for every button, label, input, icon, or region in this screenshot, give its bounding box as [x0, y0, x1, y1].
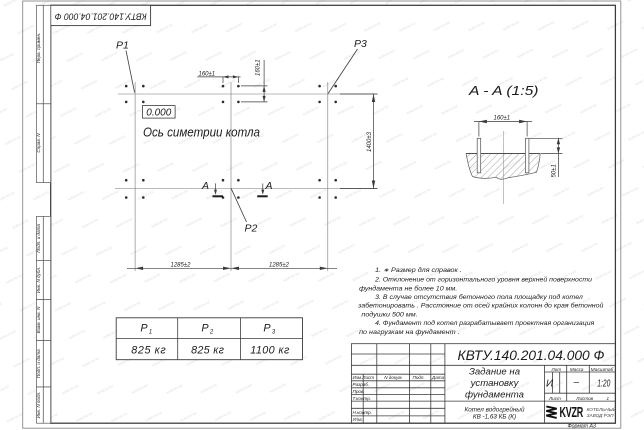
svg-text:Н.контр.: Н.контр.: [353, 410, 372, 415]
svg-text:Котел водогрейный: Котел водогрейный: [465, 406, 525, 414]
svg-text:Масса: Масса: [570, 367, 584, 372]
svg-text:50±1: 50±1: [552, 164, 558, 177]
svg-text:Дата: Дата: [431, 375, 445, 380]
svg-text:1:20: 1:20: [597, 379, 610, 390]
svg-text:Масштаб: Масштаб: [591, 367, 614, 372]
svg-text:Перв. примен.: Перв. примен.: [36, 33, 41, 64]
svg-text:КВ -1,63 КБ (К): КВ -1,63 КБ (К): [473, 414, 516, 421]
svg-text:A: A: [265, 180, 273, 192]
svg-text:160±1: 160±1: [256, 59, 262, 76]
svg-text:2: 2: [209, 330, 214, 336]
svg-text:КОТЕЛЬНЫЙ: КОТЕЛЬНЫЙ: [587, 405, 617, 412]
svg-text:P3: P3: [354, 38, 367, 50]
svg-text:забетонировать . Расстояние о: забетонировать . Расстояние от осей край…: [357, 302, 604, 310]
svg-text:Инв. N дубл.: Инв. N дубл.: [36, 267, 41, 294]
svg-text:Подп.: Подп.: [413, 375, 425, 380]
svg-text:1285±2: 1285±2: [269, 263, 290, 269]
svg-text:1285±2: 1285±2: [171, 263, 192, 269]
svg-text:подушки 500 мм.: подушки 500 мм.: [361, 310, 417, 318]
svg-text:P: P: [263, 323, 271, 335]
svg-text:–: –: [573, 377, 580, 388]
svg-text:КВТУ.140.201.04.000 Ф: КВТУ.140.201.04.000 Ф: [458, 347, 605, 363]
svg-text:P: P: [140, 323, 148, 335]
svg-text:2. Отклонение от горизонтал: 2. Отклонение от горизонтального уровня …: [374, 276, 593, 284]
svg-text:P1: P1: [116, 40, 129, 52]
svg-text:Листов: Листов: [575, 396, 593, 401]
svg-text:160±1: 160±1: [494, 115, 511, 121]
svg-text:3. В случае отсутствия бет: 3. В случае отсутствия бетонного пола пл…: [375, 293, 583, 301]
svg-text:Задание на: Задание на: [469, 367, 520, 378]
svg-text:Утв.: Утв.: [353, 417, 363, 422]
svg-text:установку: установку: [470, 378, 520, 389]
svg-text:ЗАВОД РЭП: ЗАВОД РЭП: [587, 413, 614, 418]
svg-text:4. Фундамент под котел раз: 4. Фундамент под котел разрабатывает про…: [375, 319, 595, 327]
svg-text:Изм.Лист: Изм.Лист: [353, 375, 375, 380]
svg-text:1400±3: 1400±3: [367, 131, 373, 152]
svg-text:Справ. N: Справ. N: [36, 133, 41, 153]
svg-text:1. ∗ Размер для справок .: 1. ∗ Размер для справок .: [375, 266, 462, 274]
svg-text:1: 1: [149, 330, 152, 336]
svg-text:1: 1: [607, 396, 610, 401]
svg-text:Взам. инв. N: Взам. инв. N: [36, 306, 41, 333]
svg-text:0.000: 0.000: [146, 107, 171, 118]
svg-text:Разраб.: Разраб.: [353, 382, 370, 387]
svg-text:Инв. N подл.: Инв. N подл.: [36, 392, 41, 419]
svg-text:Лит: Лит: [551, 367, 562, 372]
svg-text:825 кг: 825 кг: [131, 344, 166, 356]
svg-text:И: И: [546, 379, 554, 390]
svg-text:P: P: [201, 323, 209, 335]
svg-text:825 кг: 825 кг: [191, 344, 225, 356]
svg-text:KVZR: KVZR: [560, 404, 584, 421]
svg-text:Подп. и дата: Подп. и дата: [36, 349, 41, 378]
svg-text:A: A: [201, 180, 209, 192]
svg-text:фундамента: фундамента: [465, 390, 524, 401]
svg-text:КВТУ.140.201.04.000 Ф: КВТУ.140.201.04.000 Ф: [55, 12, 147, 22]
svg-text:Т.контр.: Т.контр.: [353, 396, 372, 401]
svg-text:N докум.: N докум.: [384, 375, 403, 380]
svg-text:160±1: 160±1: [199, 71, 216, 77]
svg-text:Формат А3: Формат А3: [568, 423, 596, 429]
svg-text:Подп. и дата: Подп. и дата: [36, 224, 41, 253]
svg-text:Лист: Лист: [548, 396, 561, 401]
svg-text:Ось симетрии котла: Ось симетрии котла: [143, 125, 260, 140]
svg-text:A - A (1:5): A - A (1:5): [468, 83, 539, 98]
svg-text:Пров.: Пров.: [353, 389, 365, 394]
svg-text:1100 кг: 1100 кг: [250, 344, 290, 356]
svg-text:фундамента не более 10 мм.: фундамента не более 10 мм.: [359, 284, 457, 292]
svg-text:P2: P2: [245, 223, 258, 235]
svg-text:по нагрузкам на фундамент .: по нагрузкам на фундамент .: [359, 328, 460, 336]
